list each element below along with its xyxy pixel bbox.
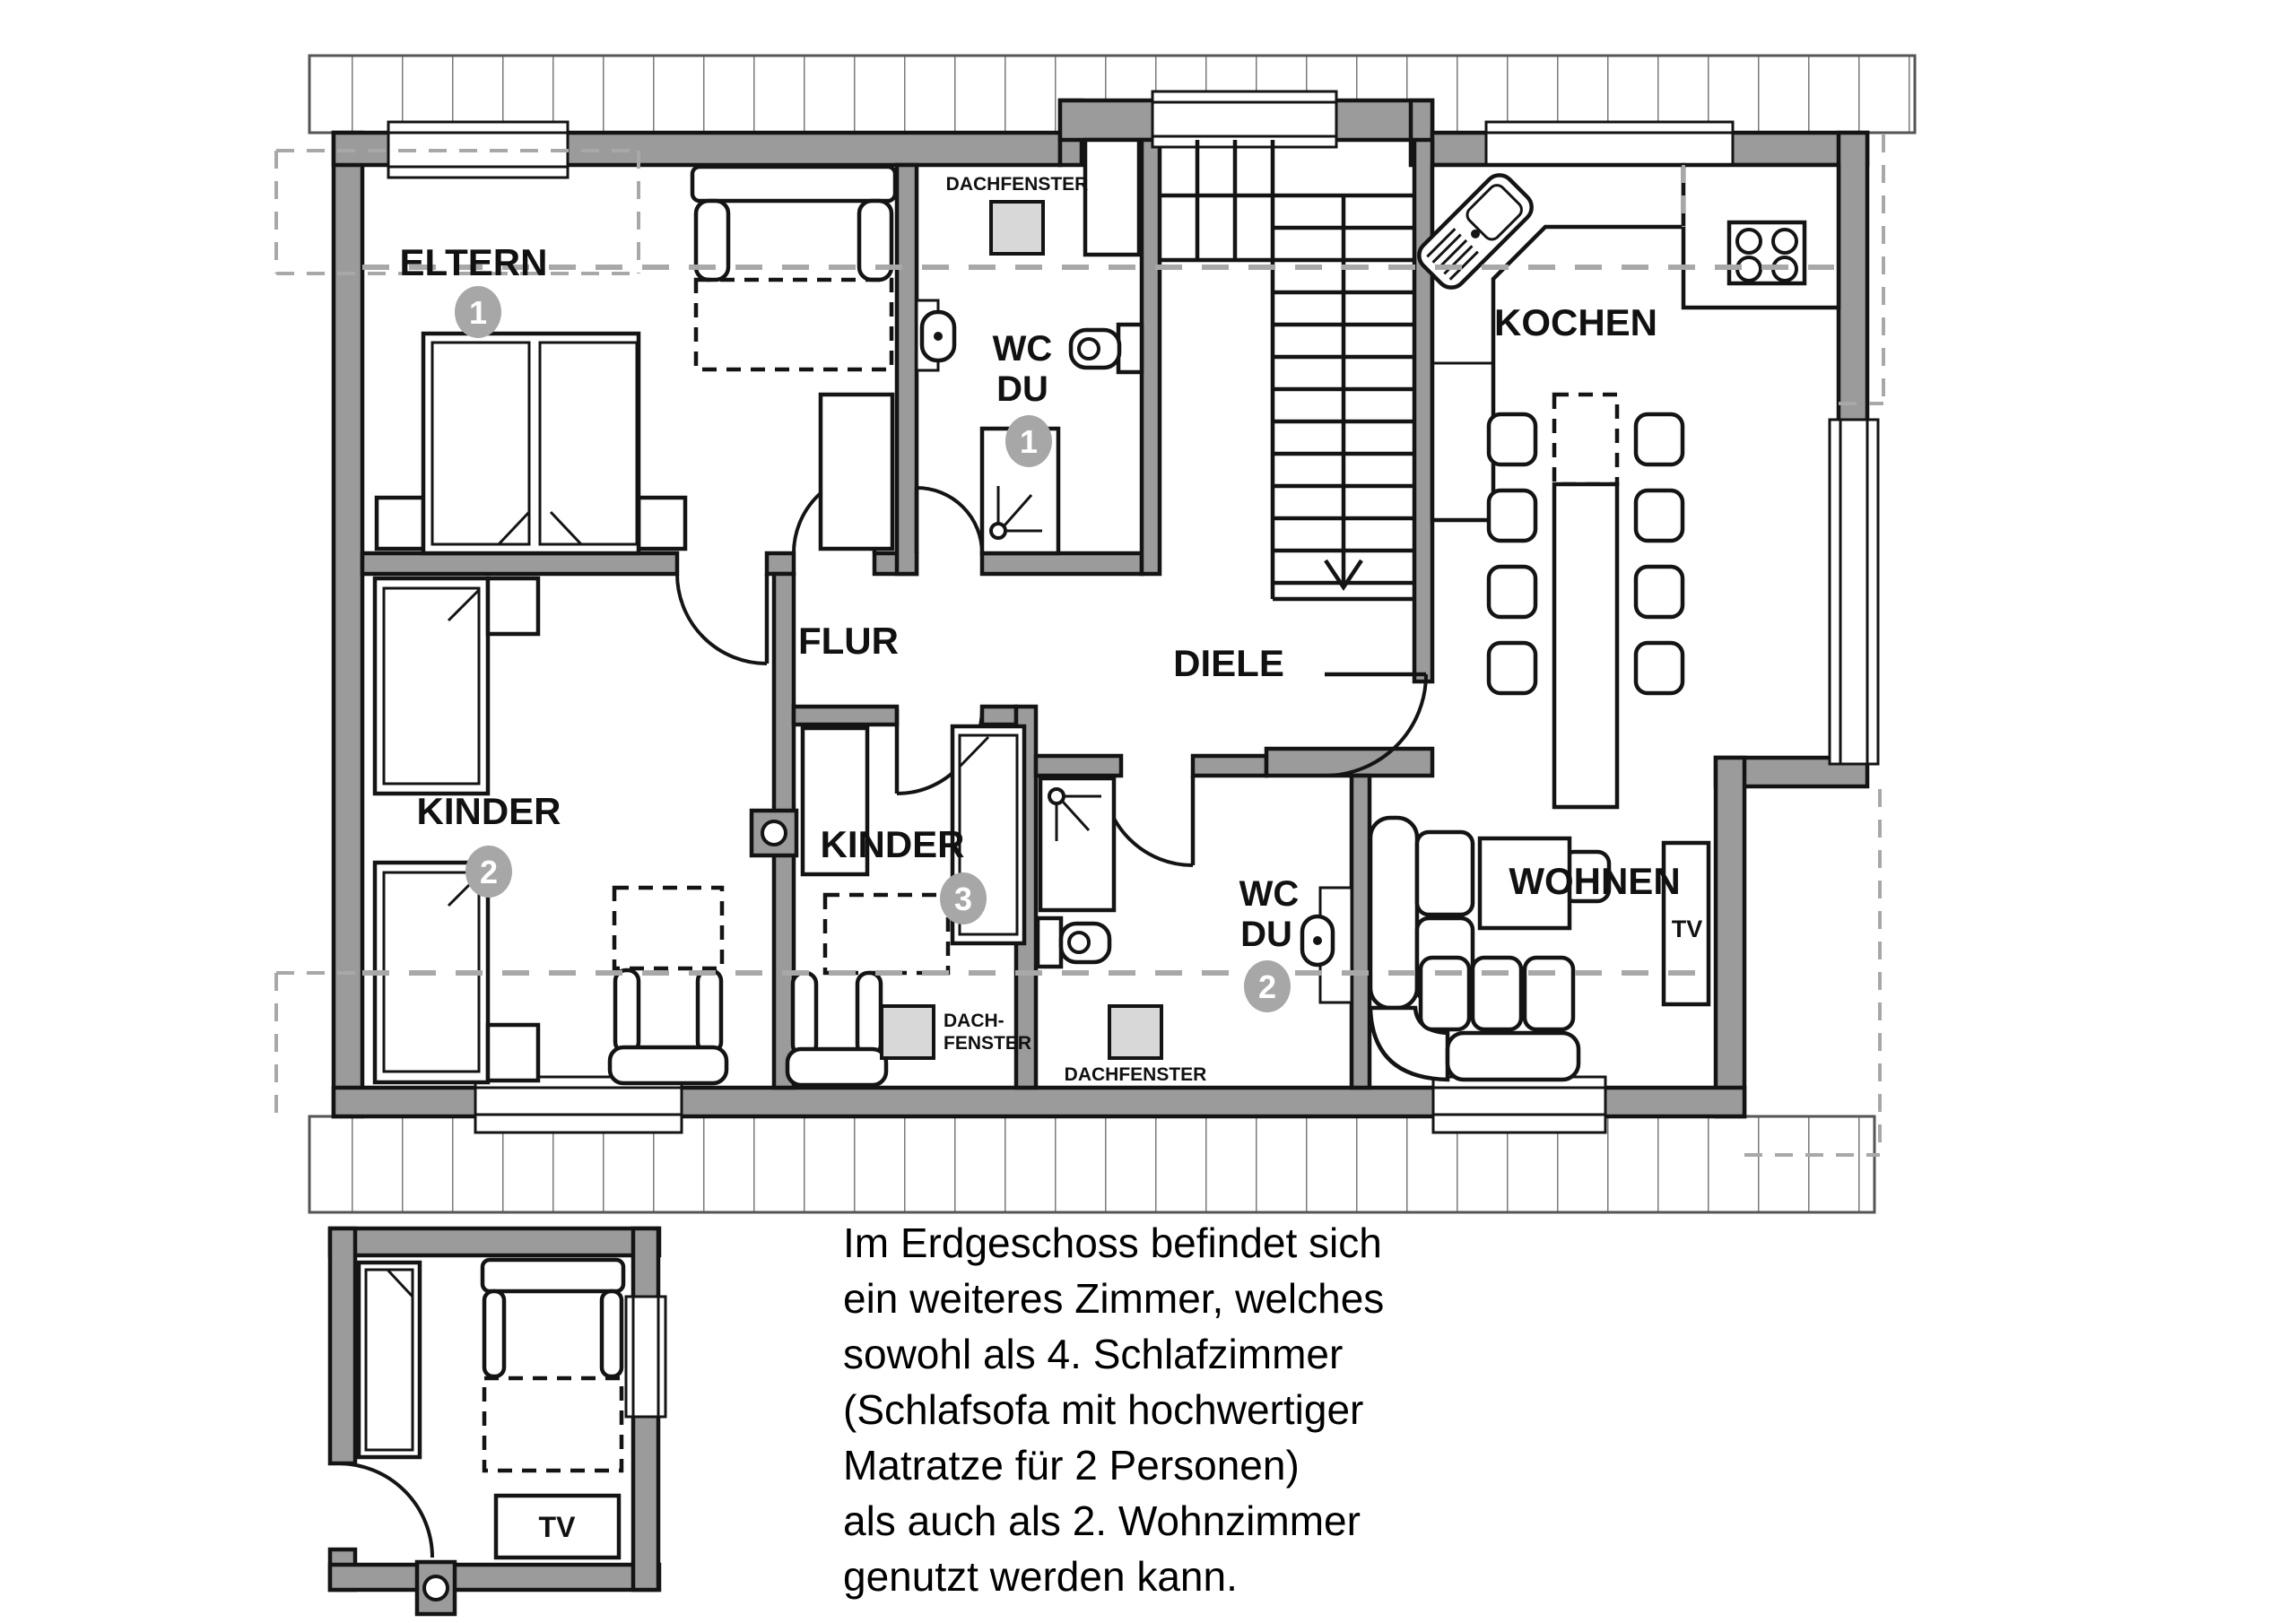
ground-floor-room: TV <box>330 1228 665 1614</box>
label-skylight-kinder3-2: FENSTER <box>944 1033 1031 1054</box>
label-diele: DIELE <box>1173 642 1284 684</box>
skylight-wc2 <box>1109 1006 1161 1058</box>
floor-plan-drawing: TV ELTERN 1 DACHFENSTER WC DU 1 FLUR DIE… <box>0 0 2296 1623</box>
chimney <box>752 811 796 855</box>
door-wc-du-1 <box>917 488 982 553</box>
window-wohnen <box>1433 1077 1605 1133</box>
stairs-down-arrow <box>1326 502 1361 587</box>
window-stairs <box>1152 91 1336 147</box>
badge-eltern: 1 <box>455 286 501 338</box>
description-text: Im Erdgeschoss befindet sich ein weitere… <box>843 1219 1384 1600</box>
label-flur: FLUR <box>798 620 899 662</box>
window-right-tall <box>1830 420 1878 764</box>
eg-tv-board: TV <box>496 1496 619 1558</box>
badge-kinder2: 2 <box>465 846 512 898</box>
skylight-kinder3 <box>882 1006 934 1058</box>
tv-label-eg: TV <box>539 1511 577 1543</box>
label-eltern: ELTERN <box>400 241 548 283</box>
svg-text:1: 1 <box>1020 423 1038 460</box>
label-skylight-kinder3-1: DACH- <box>944 1011 1004 1031</box>
shower-wc2 <box>1040 778 1114 910</box>
eg-window <box>626 1297 665 1417</box>
washbasin-wc1 <box>917 300 954 370</box>
wardrobe-eltern <box>821 395 892 549</box>
room-wohnen-furniture: TV <box>1370 818 1709 1080</box>
description-line: (Schlafsofa mit hochwertiger <box>843 1386 1363 1433</box>
skylight-wc1 <box>991 202 1043 254</box>
label-wc2-wc: WC <box>1239 874 1300 914</box>
svg-text:2: 2 <box>1258 968 1276 1005</box>
label-kochen: KOCHEN <box>1494 301 1657 343</box>
door-wc-du-2 <box>1103 776 1193 865</box>
description-line: genutzt werden kann. <box>843 1553 1238 1600</box>
dashed-area-kinder2 <box>614 888 722 968</box>
eg-door <box>338 1463 432 1558</box>
door-kinder2 <box>677 574 767 664</box>
stove <box>1729 222 1805 283</box>
svg-text:2: 2 <box>480 854 498 890</box>
label-wc2-du: DU <box>1240 915 1292 954</box>
label-wc1-wc: WC <box>993 329 1053 369</box>
badge-kinder3: 3 <box>940 872 987 924</box>
label-kinder3: KINDER <box>820 823 964 865</box>
eg-sleep-sofa <box>483 1260 623 1471</box>
double-bed <box>377 334 685 553</box>
dining-table <box>1554 395 1617 807</box>
tv-label-wohnen: TV <box>1672 916 1703 942</box>
description-line: sowohl als 4. Schlafzimmer <box>843 1331 1343 1377</box>
toilet-wc1 <box>1071 325 1142 372</box>
window-kinder2 <box>475 1077 682 1133</box>
description-line: Matratze für 2 Personen) <box>843 1442 1300 1488</box>
nightstand <box>488 578 538 634</box>
washbasin-wc2 <box>1302 888 1352 1002</box>
eg-chimney <box>417 1562 455 1614</box>
nightstand <box>488 1025 538 1081</box>
badge-wc1: 1 <box>1005 415 1052 467</box>
svg-text:1: 1 <box>469 294 487 331</box>
dashed-area-kinder3 <box>825 895 948 973</box>
label-kinder2: KINDER <box>416 790 561 832</box>
label-skylight-wc1: DACHFENSTER <box>946 174 1089 195</box>
description-line: ein weiteres Zimmer, welches <box>843 1275 1384 1322</box>
badge-wc2: 2 <box>1244 960 1291 1012</box>
label-wohnen: WOHNEN <box>1509 860 1680 902</box>
room-kochen-furniture <box>1413 165 1839 901</box>
room-kinder3-furniture <box>787 726 1024 1085</box>
svg-text:3: 3 <box>954 881 972 917</box>
staircase <box>1160 140 1414 599</box>
bed-kinder2-a <box>375 578 488 794</box>
cabinet-wc1 <box>1085 140 1139 255</box>
label-wc1-du: DU <box>996 369 1048 409</box>
label-skylight-wc2: DACHFENSTER <box>1065 1064 1207 1085</box>
description-line: als auch als 2. Wohnzimmer <box>843 1497 1361 1544</box>
eg-bed <box>359 1263 420 1457</box>
description-line: Im Erdgeschoss befindet sich <box>843 1219 1382 1266</box>
armchair-kinder2 <box>610 970 726 1083</box>
armchair-kinder3 <box>787 973 886 1085</box>
floor-plan-page: TV ELTERN 1 DACHFENSTER WC DU 1 FLUR DIE… <box>0 0 2296 1623</box>
toilet-wc2 <box>1038 918 1109 967</box>
